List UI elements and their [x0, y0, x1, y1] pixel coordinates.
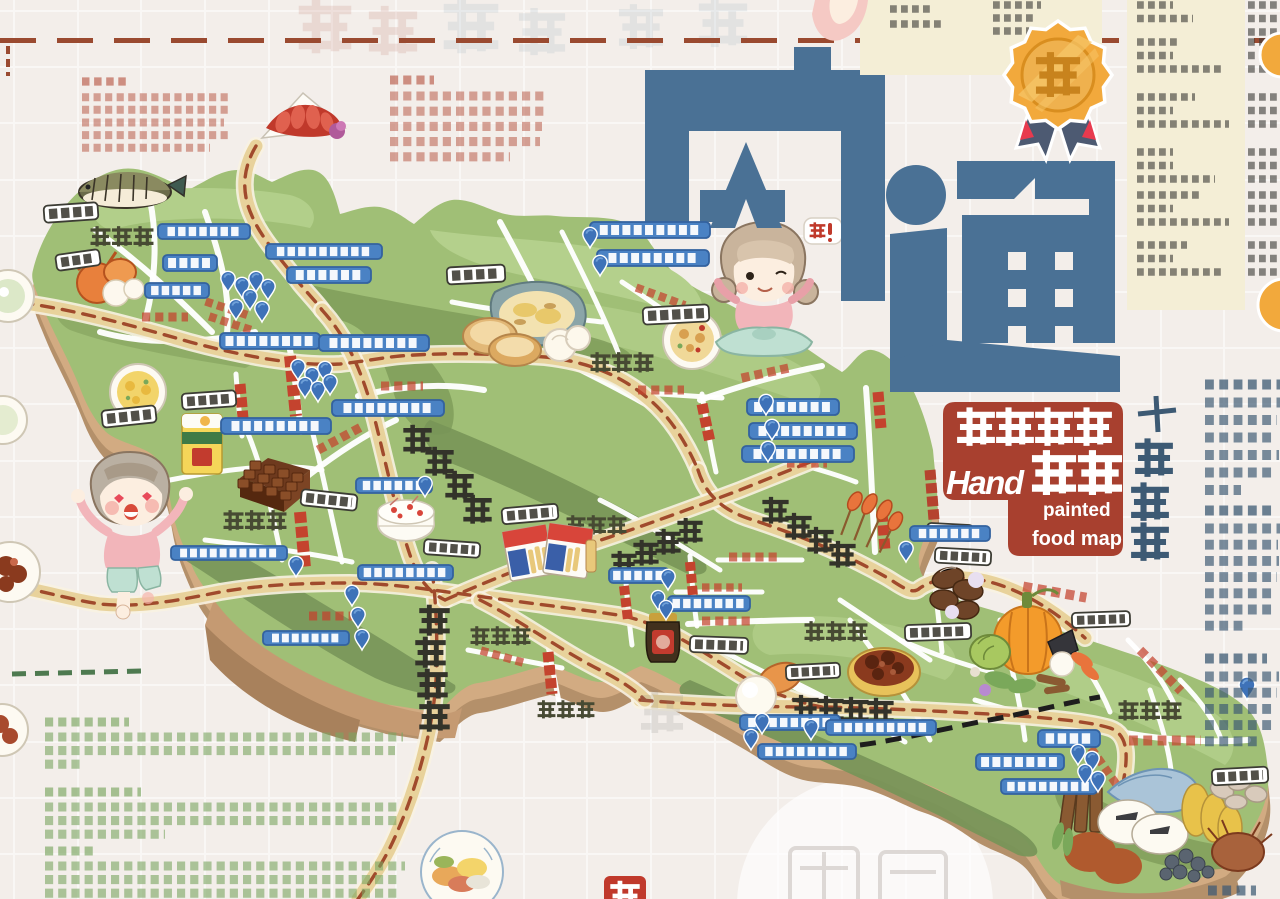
- svg-text:painted: painted: [1043, 500, 1111, 521]
- svg-text:Hand: Hand: [946, 464, 1025, 501]
- svg-text:food map: food map: [1032, 528, 1122, 550]
